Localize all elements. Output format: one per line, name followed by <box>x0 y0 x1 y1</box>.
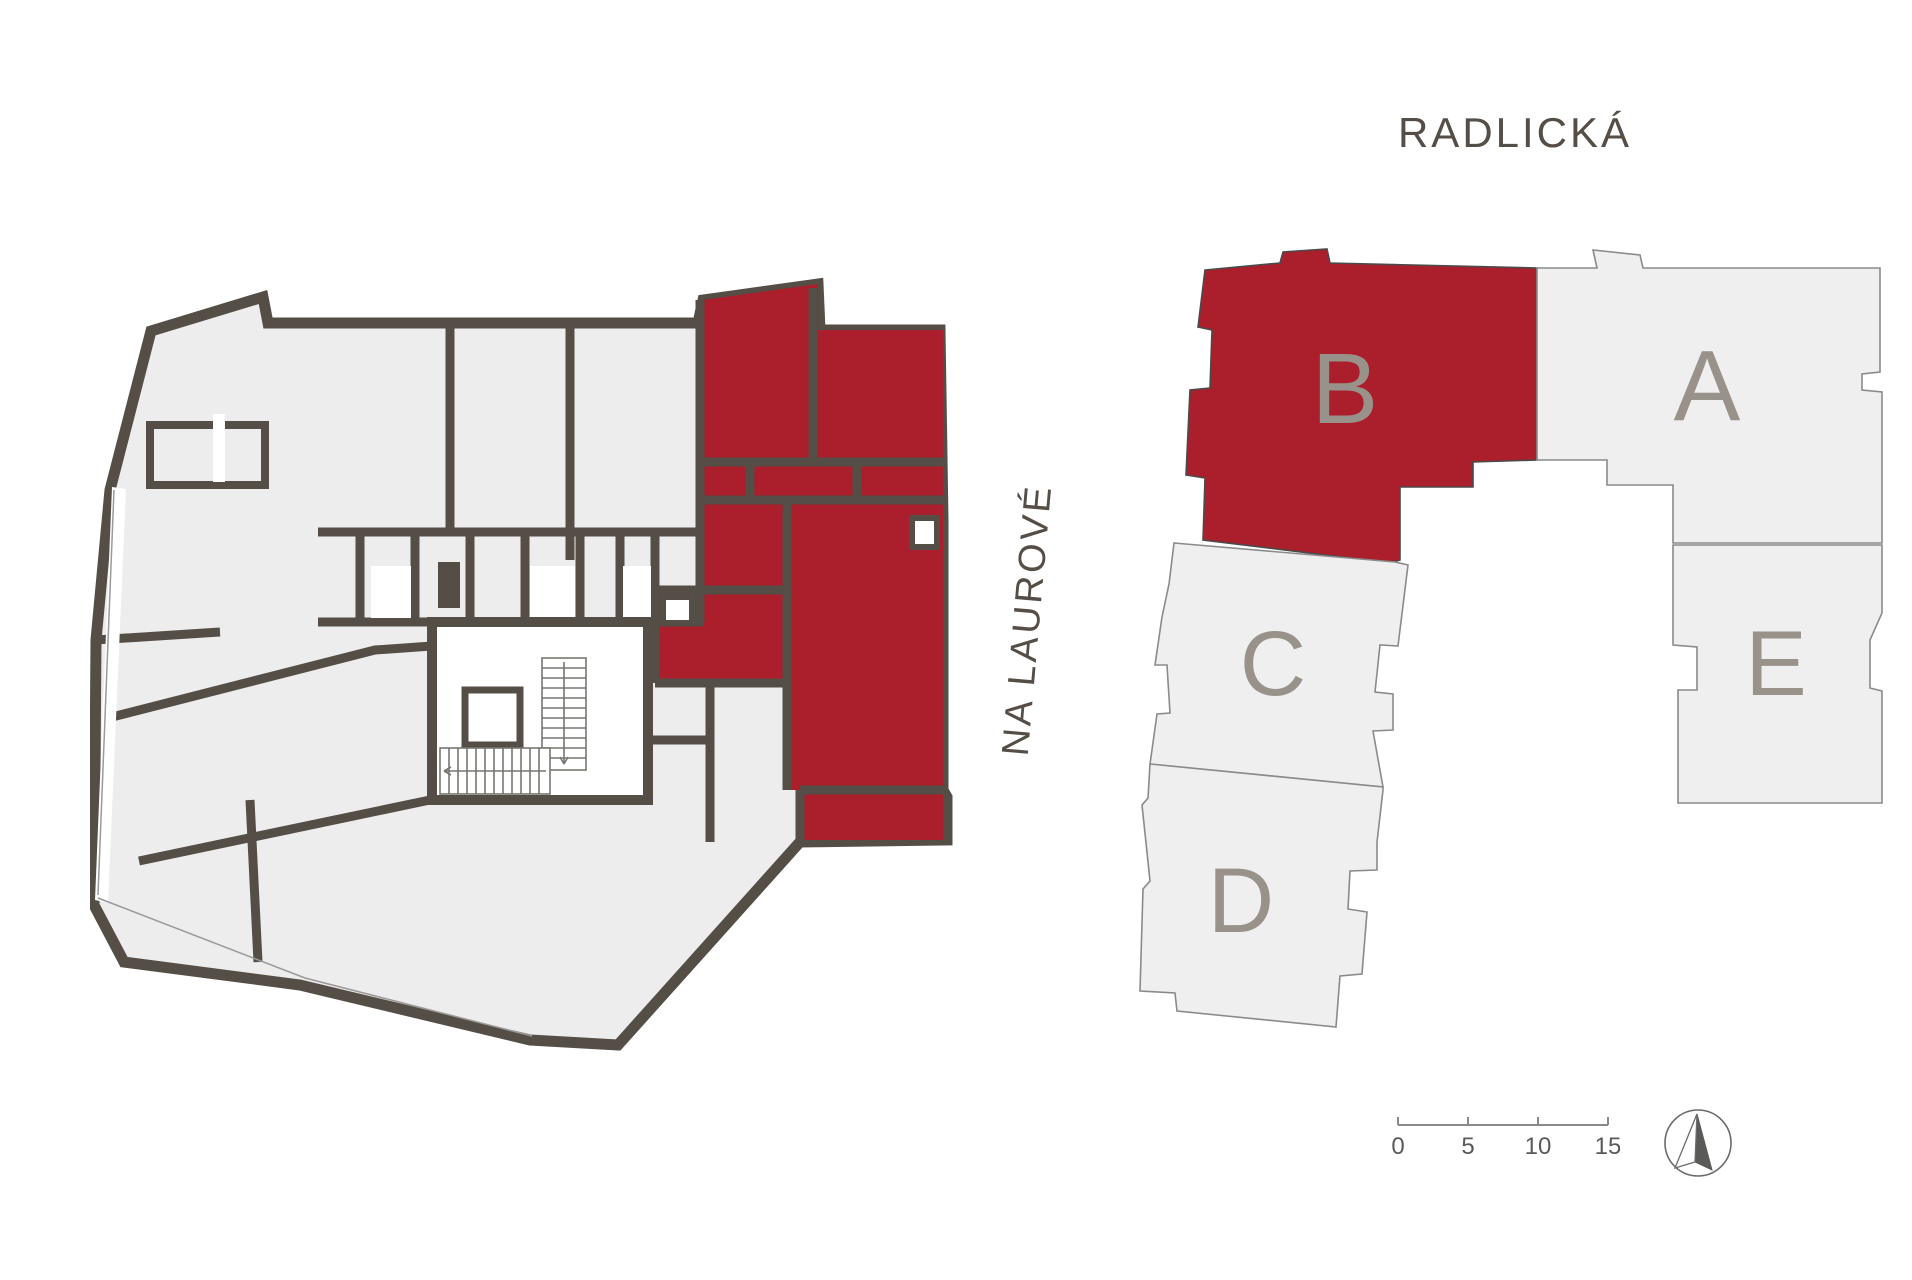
scale-tick-10: 10 <box>1525 1133 1552 1160</box>
shaft-block <box>438 562 460 608</box>
site-block-d[interactable]: D <box>1140 764 1383 1027</box>
street-label-radlicka: RADLICKÁ <box>1398 109 1632 157</box>
site-block-e-label: E <box>1745 613 1806 715</box>
stair-core <box>432 622 648 800</box>
scale-tick-15: 15 <box>1595 1133 1620 1160</box>
site-block-c[interactable]: C <box>1150 543 1408 787</box>
scale-tick-0: 0 <box>1391 1133 1404 1160</box>
site-block-a-label: A <box>1674 330 1741 442</box>
scale-tick-5: 5 <box>1461 1133 1474 1160</box>
elevator-shaft <box>465 690 520 745</box>
north-arrow-icon <box>1662 1106 1737 1181</box>
site-block-c-label: C <box>1240 613 1306 715</box>
site-block-e[interactable]: E <box>1673 545 1882 803</box>
stairs-horizontal <box>440 748 550 794</box>
floor-plan <box>90 250 970 1060</box>
site-plan: B A E C D <box>1135 195 1912 1115</box>
scale-bar: 0 5 10 15 <box>1390 1108 1620 1168</box>
site-block-a[interactable]: A <box>1537 250 1882 543</box>
site-block-d-label: D <box>1208 850 1274 952</box>
site-block-b[interactable]: B <box>1186 249 1537 563</box>
site-block-b-label: B <box>1312 333 1379 445</box>
street-label-na-laurove: NA LAUROVÉ <box>995 482 1062 758</box>
small-room <box>150 425 265 485</box>
